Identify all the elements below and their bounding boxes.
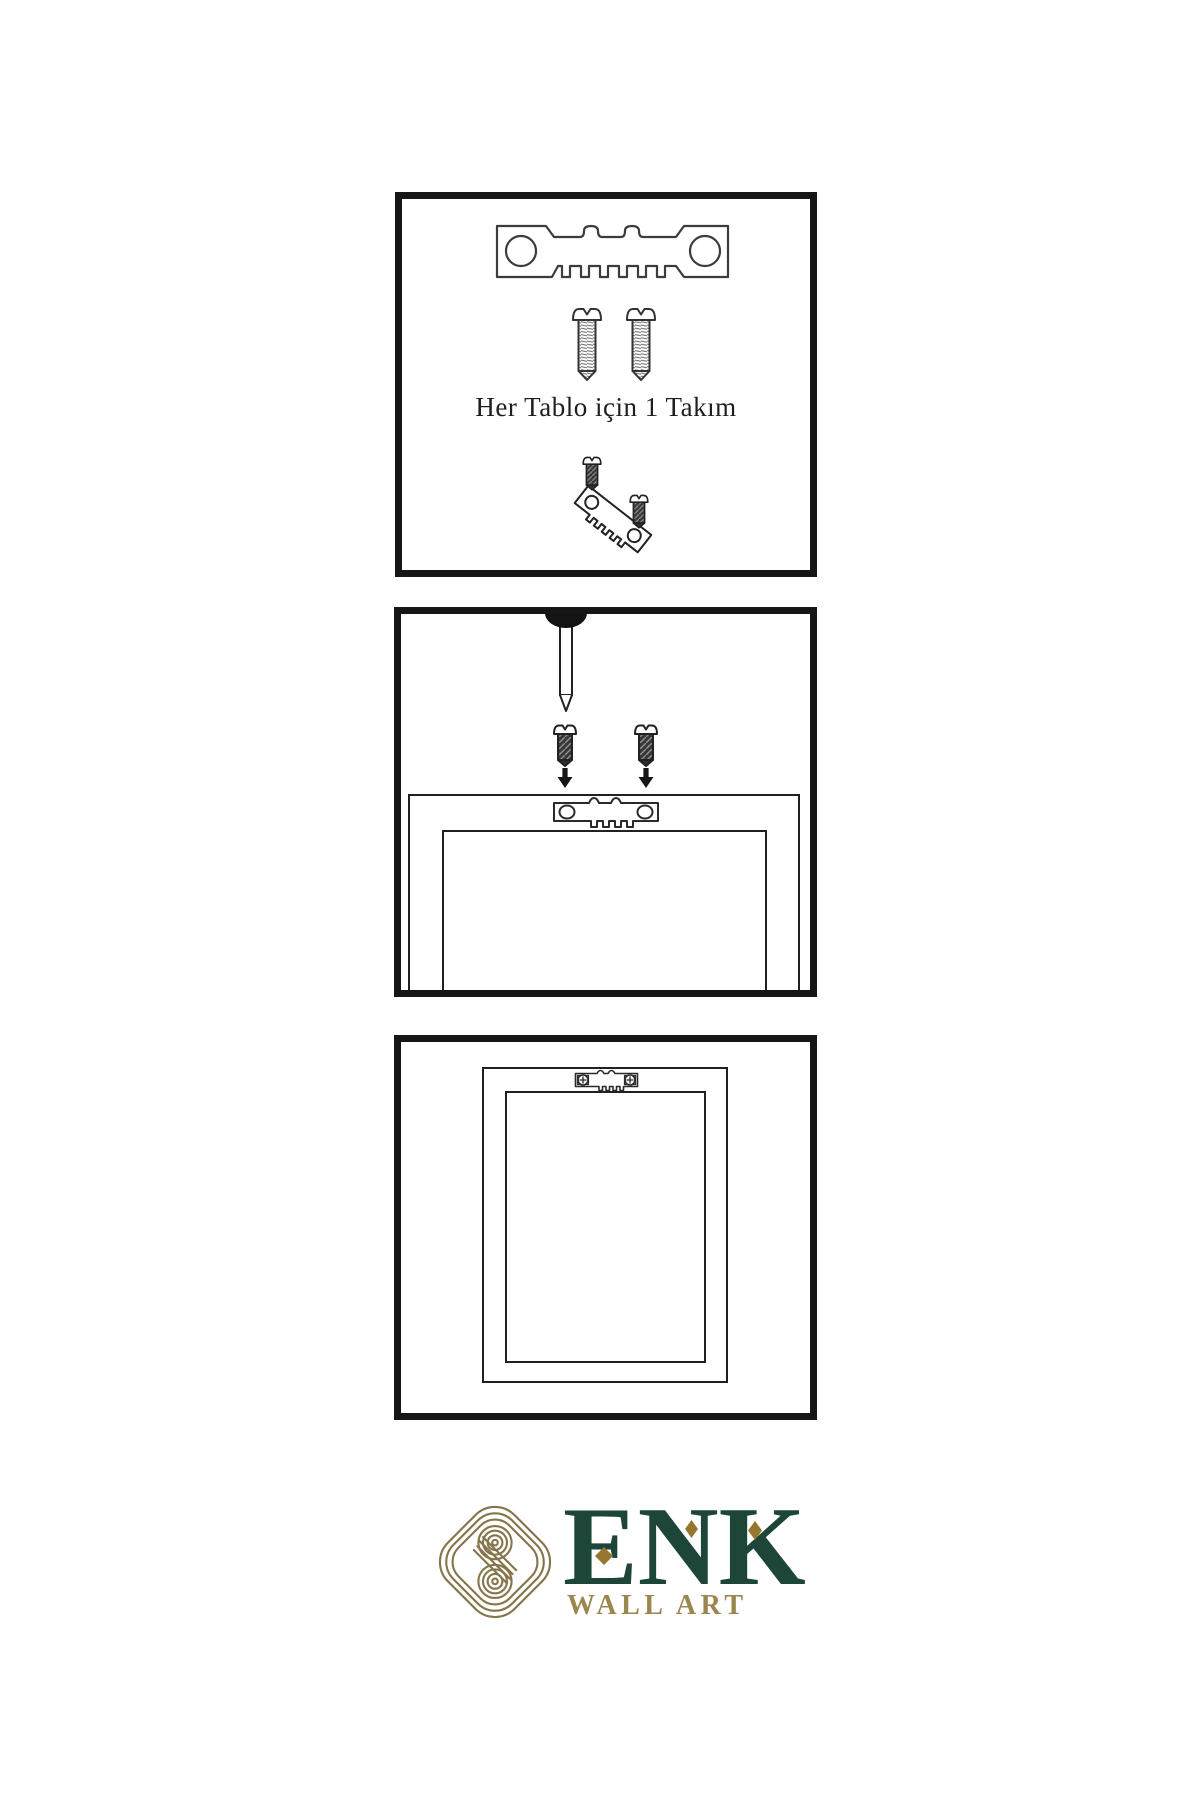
hung-frame-illustration bbox=[401, 1042, 810, 1413]
sawtooth-hanger-icon bbox=[554, 798, 658, 827]
screw-into-tilted-hanger-icon bbox=[571, 457, 651, 557]
screw-icon bbox=[635, 726, 657, 767]
knot-icon bbox=[436, 1498, 554, 1626]
frame-back-icon bbox=[483, 1068, 727, 1382]
arrow-down-icon bbox=[639, 768, 654, 788]
instruction-sheet: Her Tablo için 1 Takım bbox=[0, 0, 1200, 1800]
sawtooth-hanger-icon bbox=[497, 226, 728, 277]
panel-hung-frame bbox=[394, 1035, 817, 1420]
brand-subtitle: WALL ART bbox=[567, 1592, 748, 1620]
mount-hanger-illustration bbox=[401, 614, 810, 990]
panel-mount-hanger bbox=[394, 607, 817, 997]
screw-icon bbox=[573, 309, 601, 380]
screw-icon bbox=[627, 309, 655, 380]
kit-caption: Her Tablo için 1 Takım bbox=[402, 391, 810, 423]
arrow-down-icon bbox=[558, 768, 573, 788]
brand-name: ENK bbox=[563, 1491, 806, 1603]
installed-hanger-icon bbox=[576, 1071, 638, 1091]
screw-icon bbox=[554, 726, 576, 767]
hardware-kit-illustration bbox=[402, 199, 810, 570]
wall-nail-icon bbox=[545, 614, 587, 711]
panel-hardware-kit bbox=[395, 192, 817, 577]
